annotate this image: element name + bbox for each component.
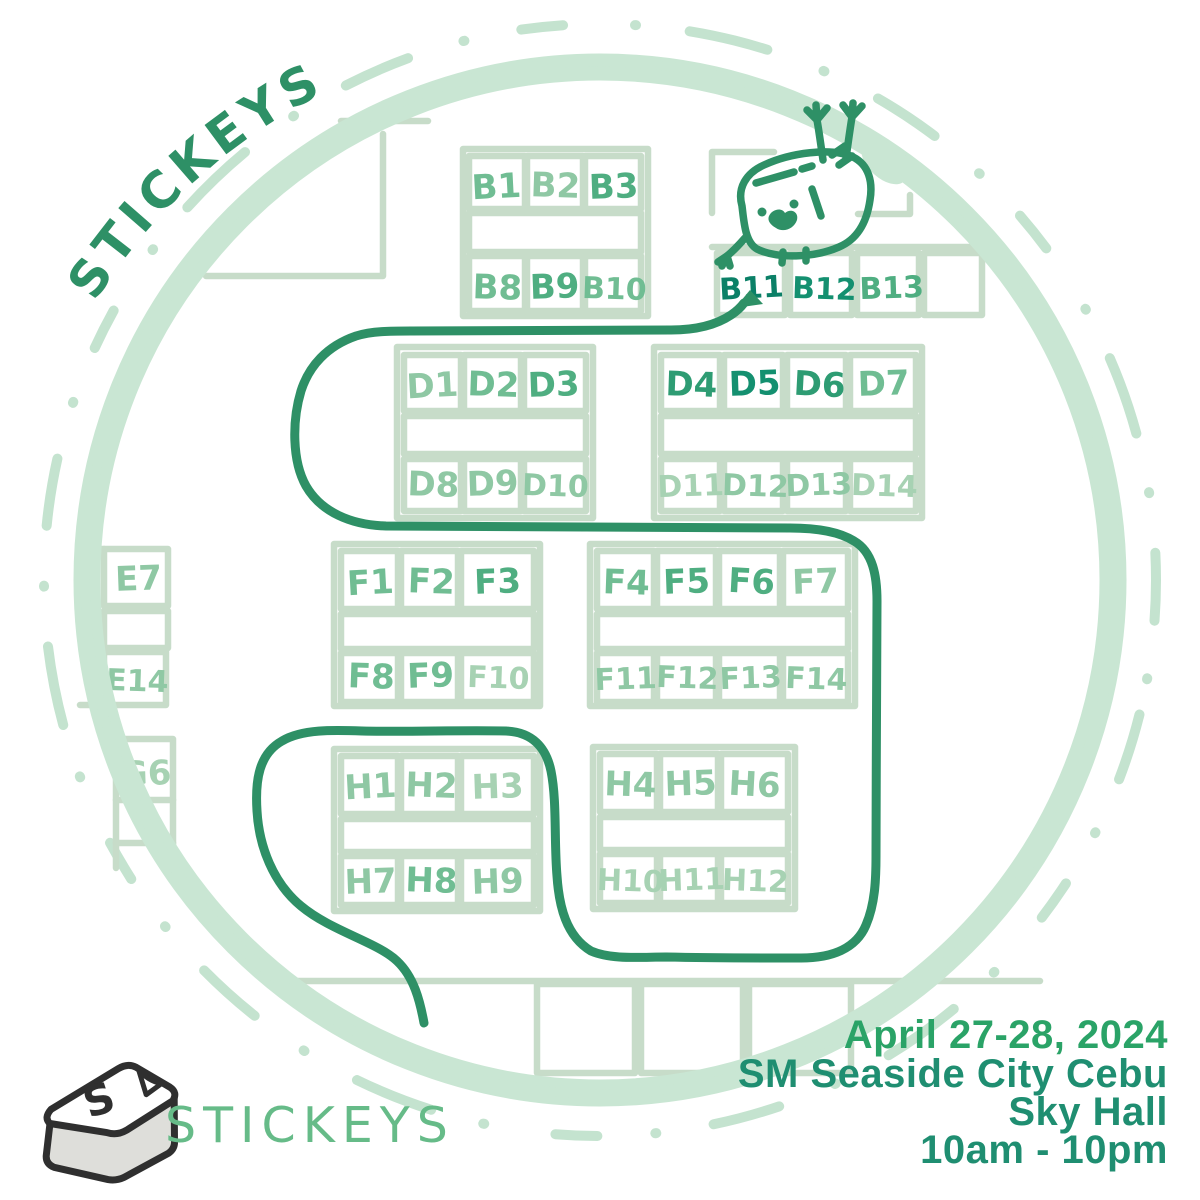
- booth-label-F6: F6: [727, 561, 776, 603]
- mascot-hand-right: [843, 103, 862, 117]
- booth-label-H12: H12: [721, 863, 789, 900]
- event-date: April 27-28, 2024: [844, 1013, 1168, 1057]
- booth-label-D6: D6: [793, 364, 847, 407]
- booth-label-F11: F11: [594, 661, 657, 698]
- booth-label-D4: D4: [665, 364, 718, 406]
- mascot-eye-right: [790, 200, 799, 209]
- booth-label-H1: H1: [343, 766, 397, 809]
- booth-label-D5: D5: [728, 363, 781, 405]
- booth-label-H7: H7: [344, 861, 397, 903]
- booth-label-D9: D9: [466, 463, 519, 505]
- mascot-top-ridge-2: [802, 166, 812, 169]
- mascot-hand-grip: [718, 256, 730, 266]
- event-hours: 10am - 10pm: [920, 1128, 1168, 1172]
- booth-label-B9: B9: [529, 266, 580, 308]
- booth-label-F10: F10: [467, 660, 530, 697]
- booth-label-D10: D10: [521, 468, 589, 505]
- booth-label-H10: H10: [596, 863, 664, 900]
- mascot-eye-left: [758, 208, 767, 217]
- booth-label-B1: B1: [471, 166, 523, 209]
- booth-label-F4: F4: [602, 562, 650, 604]
- keycap-logo-icon: S: [40, 1062, 180, 1184]
- booth-label-H6: H6: [728, 764, 782, 807]
- booth-label-E7: E7: [114, 558, 162, 600]
- booth-label-F13: F13: [719, 660, 782, 697]
- booth-label-H5: H5: [664, 763, 717, 805]
- booth-label-F8: F8: [347, 656, 395, 698]
- booth-label-B2: B2: [530, 165, 581, 207]
- booth-label-H9: H9: [471, 861, 524, 903]
- booth-label-B13: B13: [859, 270, 925, 307]
- booth-label-D3: D3: [527, 364, 580, 406]
- booth-label-B12: B12: [791, 271, 857, 308]
- booth-label-F1: F1: [346, 562, 395, 604]
- map-canvas: B1B2B3B8B9B10B11B12B13D1D2D3D4D5D6D7D8D9…: [0, 0, 1200, 1200]
- booth-label-F5: F5: [662, 561, 710, 603]
- event-map-poster: B1B2B3B8B9B10B11B12B13D1D2D3D4D5D6D7D8D9…: [0, 0, 1200, 1200]
- booth-label-F14: F14: [785, 661, 848, 698]
- booth-label-F7: F7: [791, 561, 839, 603]
- booth-label-D1: D1: [405, 365, 459, 408]
- booth-label-H3: H3: [471, 766, 524, 808]
- booth-label-B3: B3: [588, 166, 639, 208]
- booth-label-D2: D2: [467, 364, 520, 406]
- booth-label-H8: H8: [405, 860, 458, 902]
- booth-label-F12: F12: [656, 660, 719, 697]
- booth-label-D8: D8: [407, 464, 460, 506]
- keycap-mascot: [718, 103, 871, 266]
- booth-label-F2: F2: [407, 561, 455, 603]
- booth-label-H2: H2: [405, 765, 458, 807]
- mascot-mouth: [768, 209, 797, 230]
- mascot-top-ridge: [756, 172, 794, 183]
- booth-label-D7: D7: [857, 363, 910, 405]
- booth-label-B8: B8: [472, 267, 523, 309]
- booth-label-H11: H11: [658, 862, 726, 899]
- booth-label-D13: D13: [785, 467, 853, 504]
- booth-label-H4: H4: [604, 764, 657, 806]
- logo-wordmark: STICKEYS: [165, 1097, 455, 1154]
- brush-ring: [85, 62, 1117, 1094]
- booth-label-B10: B10: [581, 271, 647, 308]
- booth-label-F9: F9: [406, 655, 454, 697]
- booth-label-D14: D14: [850, 468, 918, 505]
- booth-label-D12: D12: [721, 468, 789, 505]
- mascot-side-mark: [812, 189, 821, 216]
- booth-label-F3: F3: [473, 561, 521, 603]
- booth-label-D11: D11: [657, 468, 725, 505]
- booth-label-E14: E14: [106, 663, 169, 700]
- logo: S STICKEYS: [40, 1062, 455, 1184]
